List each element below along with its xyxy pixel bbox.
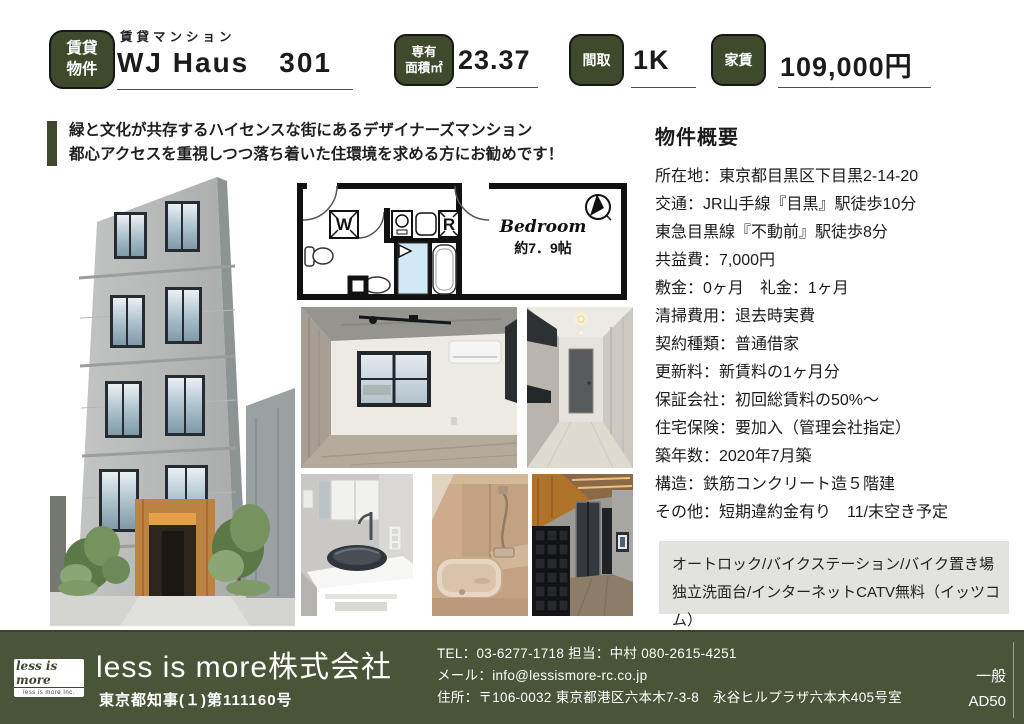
room-photo bbox=[301, 307, 517, 468]
overview-list: 所在地：東京都目黒区下目黒2-14-20 交通：JR山手線『目黒』駅徒歩10分 … bbox=[655, 163, 1017, 527]
ad-block: 一般 AD50 bbox=[948, 665, 1006, 715]
overview-item-deposit: 敷金：0ヶ月 礼金：1ヶ月 bbox=[655, 275, 1017, 303]
area-badge-line2: 面積㎡ bbox=[405, 60, 443, 76]
layout-badge-label: 間取 bbox=[583, 51, 611, 69]
floorplan-drawing: W R bbox=[293, 175, 631, 306]
entrance-photo bbox=[532, 474, 633, 616]
washer-symbol: W bbox=[330, 211, 358, 238]
washer-label: W bbox=[336, 215, 353, 234]
bedroom-size-label: 約7．9帖 bbox=[514, 240, 572, 256]
hallway-photo-illustration bbox=[527, 307, 633, 468]
contact-tel: TEL：03-6277-1718 担当：中村 080-2615-4251 bbox=[437, 643, 902, 665]
property-type-line1: 賃貸 bbox=[66, 39, 97, 59]
property-type-badge: 賃貸 物件 bbox=[49, 30, 115, 89]
fridge-symbol: R bbox=[439, 211, 459, 237]
building-entrance bbox=[135, 499, 215, 596]
overview-item-insurance: 住宅保険：要加入（管理会社指定） bbox=[655, 415, 1017, 443]
washbasin-photo bbox=[301, 474, 413, 616]
logo-signature: less is more bbox=[14, 660, 84, 687]
overview-item-common-fee: 共益費：7,000円 bbox=[655, 247, 1017, 275]
overview-item-renewal: 更新料：新賃料の1ヶ月分 bbox=[655, 359, 1017, 387]
building-exterior-photo bbox=[50, 168, 295, 626]
area-badge: 専有 面積㎡ bbox=[394, 34, 454, 86]
rent-badge-label: 家賃 bbox=[725, 51, 753, 69]
bathroom-photo-illustration bbox=[432, 474, 528, 616]
area-underline bbox=[456, 87, 538, 88]
hallway-photo bbox=[527, 307, 633, 468]
property-overview-section: 物件概要 所在地：東京都目黒区下目黒2-14-20 交通：JR山手線『目黒』駅徒… bbox=[655, 121, 1017, 527]
layout-underline bbox=[631, 87, 696, 88]
footer-divider bbox=[1013, 642, 1014, 718]
logo-caption: less is more Inc. bbox=[23, 690, 75, 696]
contact-email: メール：info@lessismore-rc.co.jp bbox=[437, 665, 902, 687]
catchphrase-line1: 緑と文化が共存するハイセンスな街にあるデザイナーズマンション bbox=[69, 119, 563, 143]
overview-heading: 物件概要 bbox=[655, 121, 1017, 150]
overview-item-cleaning: 清掃費用：退去時実費 bbox=[655, 303, 1017, 331]
building-exterior-illustration bbox=[50, 168, 295, 626]
room-photo-illustration bbox=[301, 307, 517, 468]
overview-item-other: その他：短期違約金有り 11/末空き予定 bbox=[655, 499, 1017, 527]
area-badge-line1: 専有 bbox=[411, 44, 436, 60]
contact-block: TEL：03-6277-1718 担当：中村 080-2615-4251 メール… bbox=[437, 643, 902, 709]
overview-item-contract: 契約種類：普通借家 bbox=[655, 331, 1017, 359]
overview-item-built: 築年数：2020年7月築 bbox=[655, 443, 1017, 471]
features-line1: オートロック/バイクステーション/バイク置き場 bbox=[672, 551, 1009, 579]
overview-item-access1: 交通：JR山手線『目黒』駅徒歩10分 bbox=[655, 191, 1017, 219]
features-box: オートロック/バイクステーション/バイク置き場 独立洗面台/インターネットCAT… bbox=[659, 541, 1009, 614]
floorplan-image: W R bbox=[293, 175, 631, 306]
layout-value: 1K bbox=[633, 45, 670, 76]
license-number: 東京都知事(１)第111160号 bbox=[99, 689, 293, 710]
catchphrase-text: 緑と文化が共存するハイセンスな街にあるデザイナーズマンション 都心アクセスを重視… bbox=[69, 119, 563, 167]
entrance-photo-illustration bbox=[532, 474, 633, 616]
ad-class-label: 一般 bbox=[948, 665, 1006, 690]
area-value: 23.37 bbox=[458, 45, 531, 76]
features-line2: 独立洗面台/インターネットCATV無料（イッツコム） bbox=[672, 579, 1009, 635]
layout-badge: 間取 bbox=[569, 34, 624, 86]
toilet-symbol bbox=[305, 247, 333, 266]
sink-symbol bbox=[416, 213, 436, 235]
rent-value: 109,000円 bbox=[780, 45, 913, 84]
catchphrase-line2: 都心アクセスを重視しつつ落ち着いた住環境を求める方にお勧めです！ bbox=[69, 143, 563, 167]
ad-code-label: AD50 bbox=[948, 690, 1006, 715]
footer: less is more less is more Inc. less is m… bbox=[0, 630, 1024, 724]
title-underline bbox=[117, 89, 353, 90]
overview-item-location: 所在地：東京都目黒区下目黒2-14-20 bbox=[655, 163, 1017, 191]
stove-symbol bbox=[392, 211, 412, 237]
company-name: less is more株式会社 bbox=[96, 642, 392, 686]
fridge-label: R bbox=[443, 215, 455, 234]
property-title: WJ Haus 301 bbox=[117, 41, 332, 81]
overview-item-access2: 東急目黒線『不動前』駅徒歩8分 bbox=[655, 219, 1017, 247]
bathroom-photo bbox=[432, 474, 528, 616]
overview-item-structure: 構造：鉄筋コンクリート造５階建 bbox=[655, 471, 1017, 499]
rent-underline bbox=[778, 87, 931, 88]
bedroom-label: Bedroom bbox=[499, 217, 587, 237]
catchphrase-accent-bar bbox=[47, 121, 57, 166]
overview-item-guarantor: 保証会社：初回総賃料の50%～ bbox=[655, 387, 1017, 415]
entry-step bbox=[350, 278, 366, 294]
property-flyer: 賃貸 物件 賃貸マンション WJ Haus 301 専有 面積㎡ 23.37 間… bbox=[0, 0, 1024, 724]
property-type-line2: 物件 bbox=[66, 60, 97, 80]
rent-badge: 家賃 bbox=[711, 34, 766, 86]
company-logo: less is more less is more Inc. bbox=[14, 659, 84, 697]
washbasin-photo-illustration bbox=[301, 474, 413, 616]
contact-address: 住所：〒106-0032 東京都港区六本木7-3-8 永谷ヒルプラザ六本木405… bbox=[437, 687, 902, 709]
